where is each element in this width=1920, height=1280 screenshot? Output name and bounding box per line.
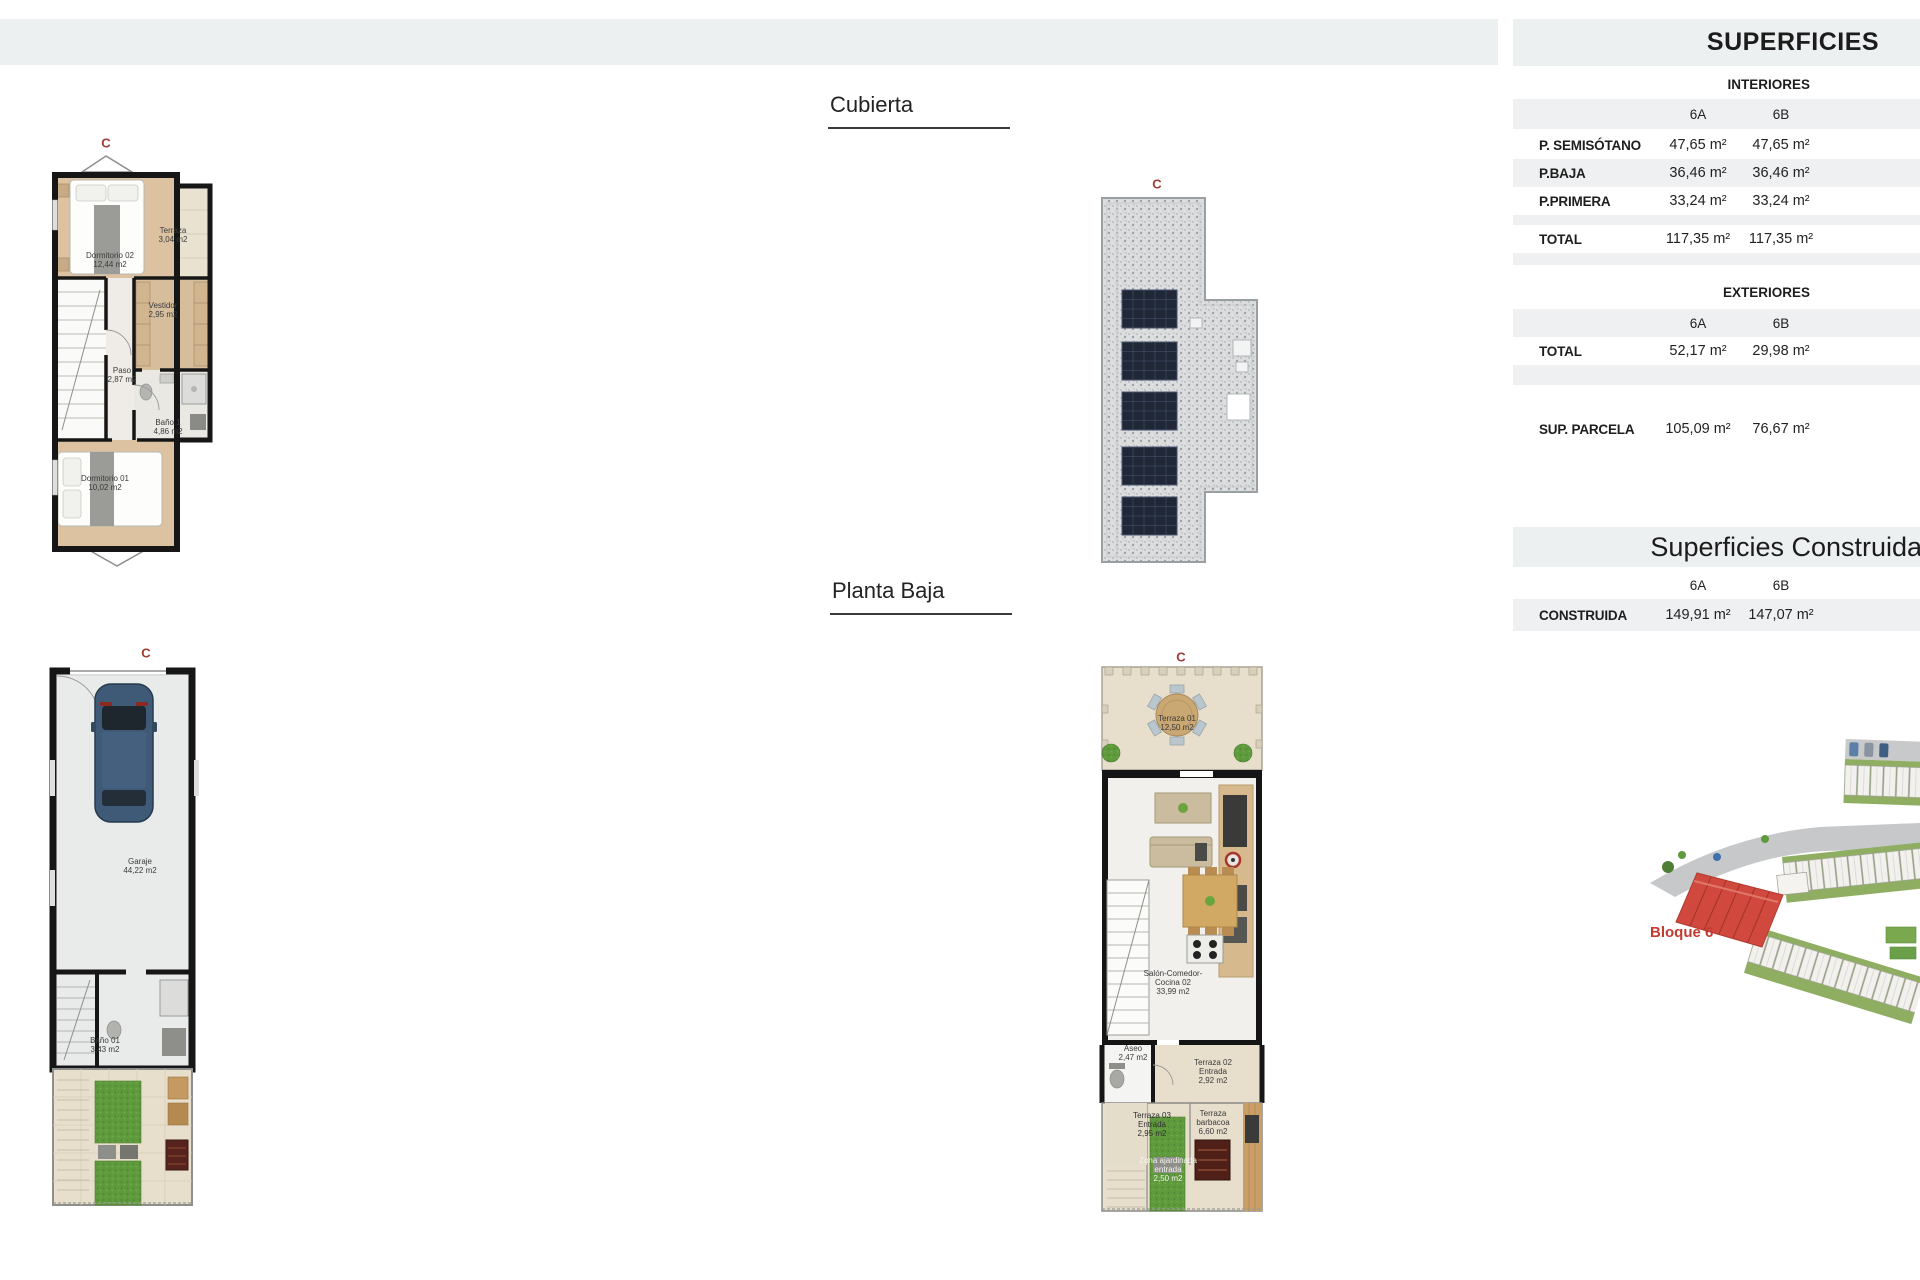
sofa (1150, 837, 1212, 867)
bed-dormitorio-01 (58, 452, 162, 526)
grass-patch (95, 1081, 141, 1143)
bbq-grill (1195, 1140, 1230, 1180)
dining-table (1183, 867, 1237, 936)
grass-patch (95, 1161, 141, 1205)
superficies-table: SUPERFICIES INTERIORES 6A 6B P. SEMISÓTA… (1513, 19, 1920, 659)
cubierta-plan: C (1095, 172, 1270, 572)
semisotano-plan: C (42, 640, 207, 1220)
bay-window-top (82, 156, 132, 172)
bloque-6-label: Bloque 6 (1650, 924, 1713, 941)
bbq-grill (166, 1140, 188, 1170)
planter (1153, 1157, 1182, 1173)
section-marker-c-icon: C (141, 646, 150, 661)
house-row (1843, 739, 1920, 806)
table-spacer (1513, 365, 1920, 385)
plant (1102, 744, 1120, 762)
plant (1234, 744, 1252, 762)
planta-primera-drawing (42, 130, 222, 570)
table-row: TOTAL 52,17 m² 29,98 m² (1513, 337, 1920, 365)
parcela-row: SUP. PARCELA 105,09 m² 76,67 m² (1513, 415, 1920, 443)
column-header-6a: 6A (1659, 107, 1737, 122)
sideboard (1155, 793, 1211, 823)
green-area (1890, 947, 1916, 959)
planta-baja-plan: C (1095, 645, 1270, 1220)
construidas-table-title: Superficies Construidas (1513, 527, 1920, 567)
car (91, 684, 157, 822)
table-spacer (1513, 215, 1920, 225)
green-area (1886, 927, 1916, 943)
exterior-section-title: EXTERIORES (1513, 285, 1810, 305)
section-marker-c-icon: C (1152, 177, 1161, 192)
stove (1187, 935, 1223, 963)
table-row: P.BAJA 36,46 m² 36,46 m² (1513, 159, 1920, 187)
construidas-header-row: 6A 6B (1513, 571, 1920, 599)
column-header-6a: 6A (1659, 578, 1737, 593)
site-plan-drawing (1590, 735, 1920, 1025)
table-row: P.PRIMERA 33,24 m² 33,24 m² (1513, 187, 1920, 215)
bush (1678, 851, 1686, 859)
interior-section-title: INTERIORES (1513, 77, 1810, 97)
small-building (1777, 872, 1809, 895)
column-header-6a: 6A (1659, 316, 1737, 331)
column-header-6b: 6B (1737, 578, 1825, 593)
planta-primera-plan: C (42, 130, 222, 570)
exterior-header-row: 6A 6B (1513, 309, 1920, 337)
table-row: TOTAL 117,35 m² 117,35 m² (1513, 225, 1920, 253)
solar-panels (1122, 290, 1177, 535)
table-spacer (1513, 253, 1920, 265)
section-marker-c-icon: C (1176, 650, 1185, 665)
pool (1713, 853, 1721, 861)
sun-lounger (120, 1145, 138, 1159)
planta-baja-drawing (1095, 645, 1270, 1220)
bed-dormitorio-02 (57, 180, 144, 274)
page-top-band (0, 19, 1498, 65)
column-header-6b: 6B (1737, 316, 1825, 331)
roof-vent (1190, 318, 1202, 328)
interior-header-row: 6A 6B (1513, 99, 1920, 129)
superficies-table-title: SUPERFICIES (1513, 19, 1920, 66)
roof-vent (1233, 340, 1251, 356)
toilet (1109, 1063, 1125, 1088)
table-row: CONSTRUIDA 149,91 m² 147,07 m² (1513, 599, 1920, 631)
sun-lounger (98, 1145, 116, 1159)
planta-baja-heading: Planta Baja (830, 578, 1012, 615)
section-marker-c-icon: C (101, 136, 110, 151)
bush (1662, 861, 1674, 873)
cubierta-drawing (1095, 172, 1270, 572)
stairs (1107, 880, 1149, 1035)
cubierta-heading: Cubierta (828, 92, 1010, 129)
roof-opening (1227, 394, 1250, 420)
roof-vent (1236, 362, 1248, 372)
semisotano-drawing (42, 640, 207, 1220)
bush (1761, 835, 1769, 843)
column-header-6b: 6B (1737, 107, 1825, 122)
site-plan: Bloque 6 (1590, 735, 1920, 1025)
table-row: P. SEMISÓTANO 47,65 m² 47,65 m² (1513, 131, 1920, 159)
